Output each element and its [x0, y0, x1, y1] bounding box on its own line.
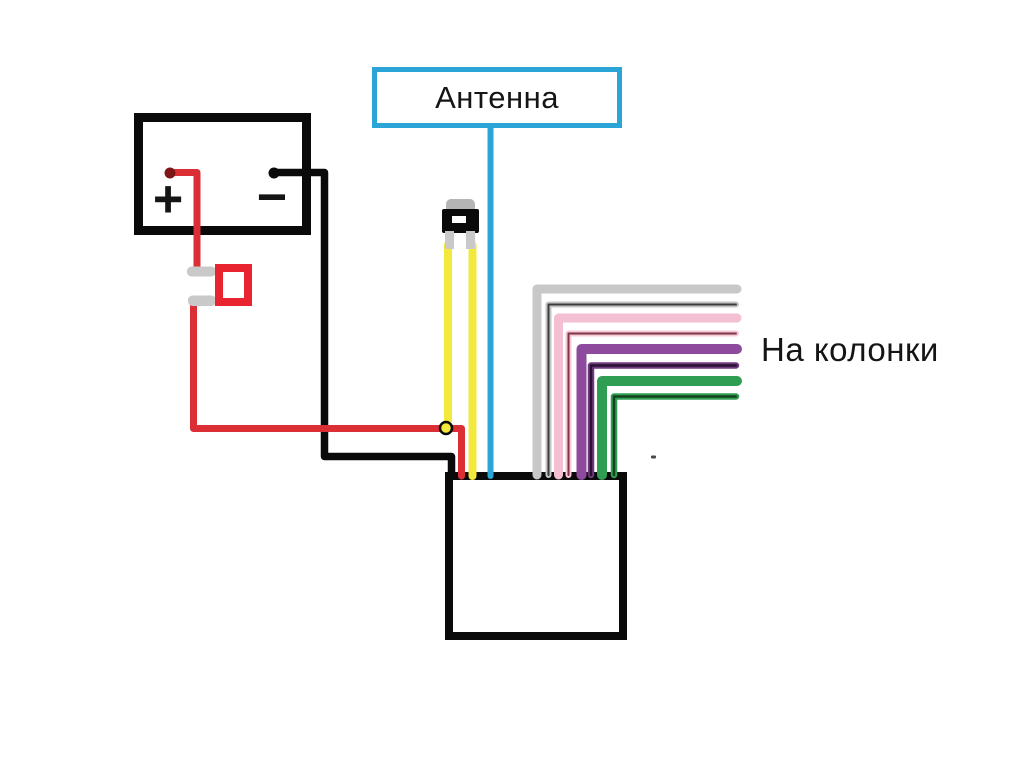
- speaker-wire-green-black-core: [614, 397, 736, 476]
- head-unit-box: [449, 476, 623, 636]
- battery-minus-sign: −: [257, 168, 287, 228]
- splice-dot: [440, 422, 452, 434]
- inline-fuse-prong-left: [445, 231, 454, 249]
- inline-fuse-window: [452, 216, 466, 223]
- to-speakers-label: На колонки: [761, 331, 939, 369]
- inline-fuse-prong-right: [466, 231, 475, 249]
- fuse-prong-top: [187, 267, 216, 277]
- battery-plus-sign: +: [153, 170, 183, 230]
- stray-mark: [651, 456, 656, 459]
- fuse-prong-bottom: [188, 296, 216, 307]
- antenna-label: Антенна: [374, 69, 620, 126]
- car-stereo-wiring-diagram: Антенна На колонки + −: [0, 0, 1024, 757]
- speaker-wire-green-black: [614, 397, 736, 476]
- fuse-holder: [219, 268, 248, 302]
